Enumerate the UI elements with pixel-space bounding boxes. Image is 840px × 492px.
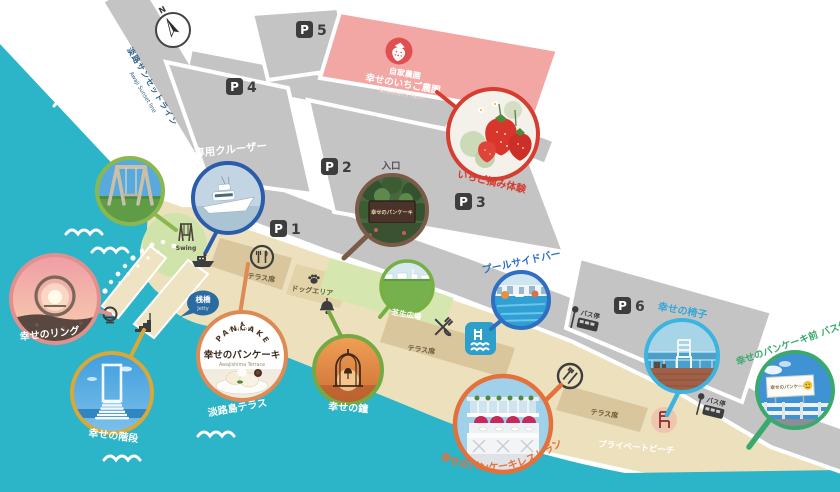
parking-marker-p3: P 3 — [455, 193, 486, 211]
p-letter: P — [618, 299, 627, 313]
logo-sub-label: Awajishima Terrace — [219, 362, 265, 368]
parking-marker-p5: P 5 — [296, 21, 327, 39]
map-canvas: 自家農園 幸せのいちご農園 Strawberry Farm N 淡路サンセットラ… — [0, 0, 840, 492]
p-letter: P — [459, 195, 468, 209]
jetty-jp-label: 桟橋 — [196, 294, 211, 304]
poi-cruiser[interactable]: 専用クルーザー — [193, 139, 268, 233]
jetty-en-label: Jetty — [196, 306, 208, 312]
chair-map-icon — [651, 407, 677, 433]
p-number: 1 — [291, 222, 301, 238]
p-number: 4 — [247, 80, 257, 96]
entrance-sign-text: 幸せのパンケーキ — [371, 208, 413, 216]
p-letter: P — [230, 80, 239, 94]
p-letter: P — [300, 23, 309, 37]
parking-marker-p4: P 4 — [226, 78, 257, 96]
parking-marker-p1: P 1 — [270, 220, 301, 238]
poi-ring[interactable]: 幸せのリング — [11, 255, 99, 343]
parking-marker-p6: P 6 — [614, 297, 645, 315]
swing-en-label: Swing — [176, 245, 197, 252]
p-number: 6 — [635, 299, 645, 315]
p-number: 3 — [476, 195, 486, 211]
resort-map: 自家農園 幸せのいちご農園 Strawberry Farm N 淡路サンセットラ… — [0, 0, 840, 492]
logo-main-label: 幸せのパンケーキ — [204, 349, 280, 361]
p-number: 5 — [317, 23, 327, 39]
poi-swing[interactable]: 岬のブランコ — [97, 135, 164, 224]
entrance-label: 入口 — [380, 161, 400, 172]
p-letter: P — [325, 160, 334, 174]
p-letter: P — [274, 222, 283, 236]
parking-marker-p2: P 2 — [321, 158, 352, 176]
p-number: 2 — [342, 160, 352, 176]
